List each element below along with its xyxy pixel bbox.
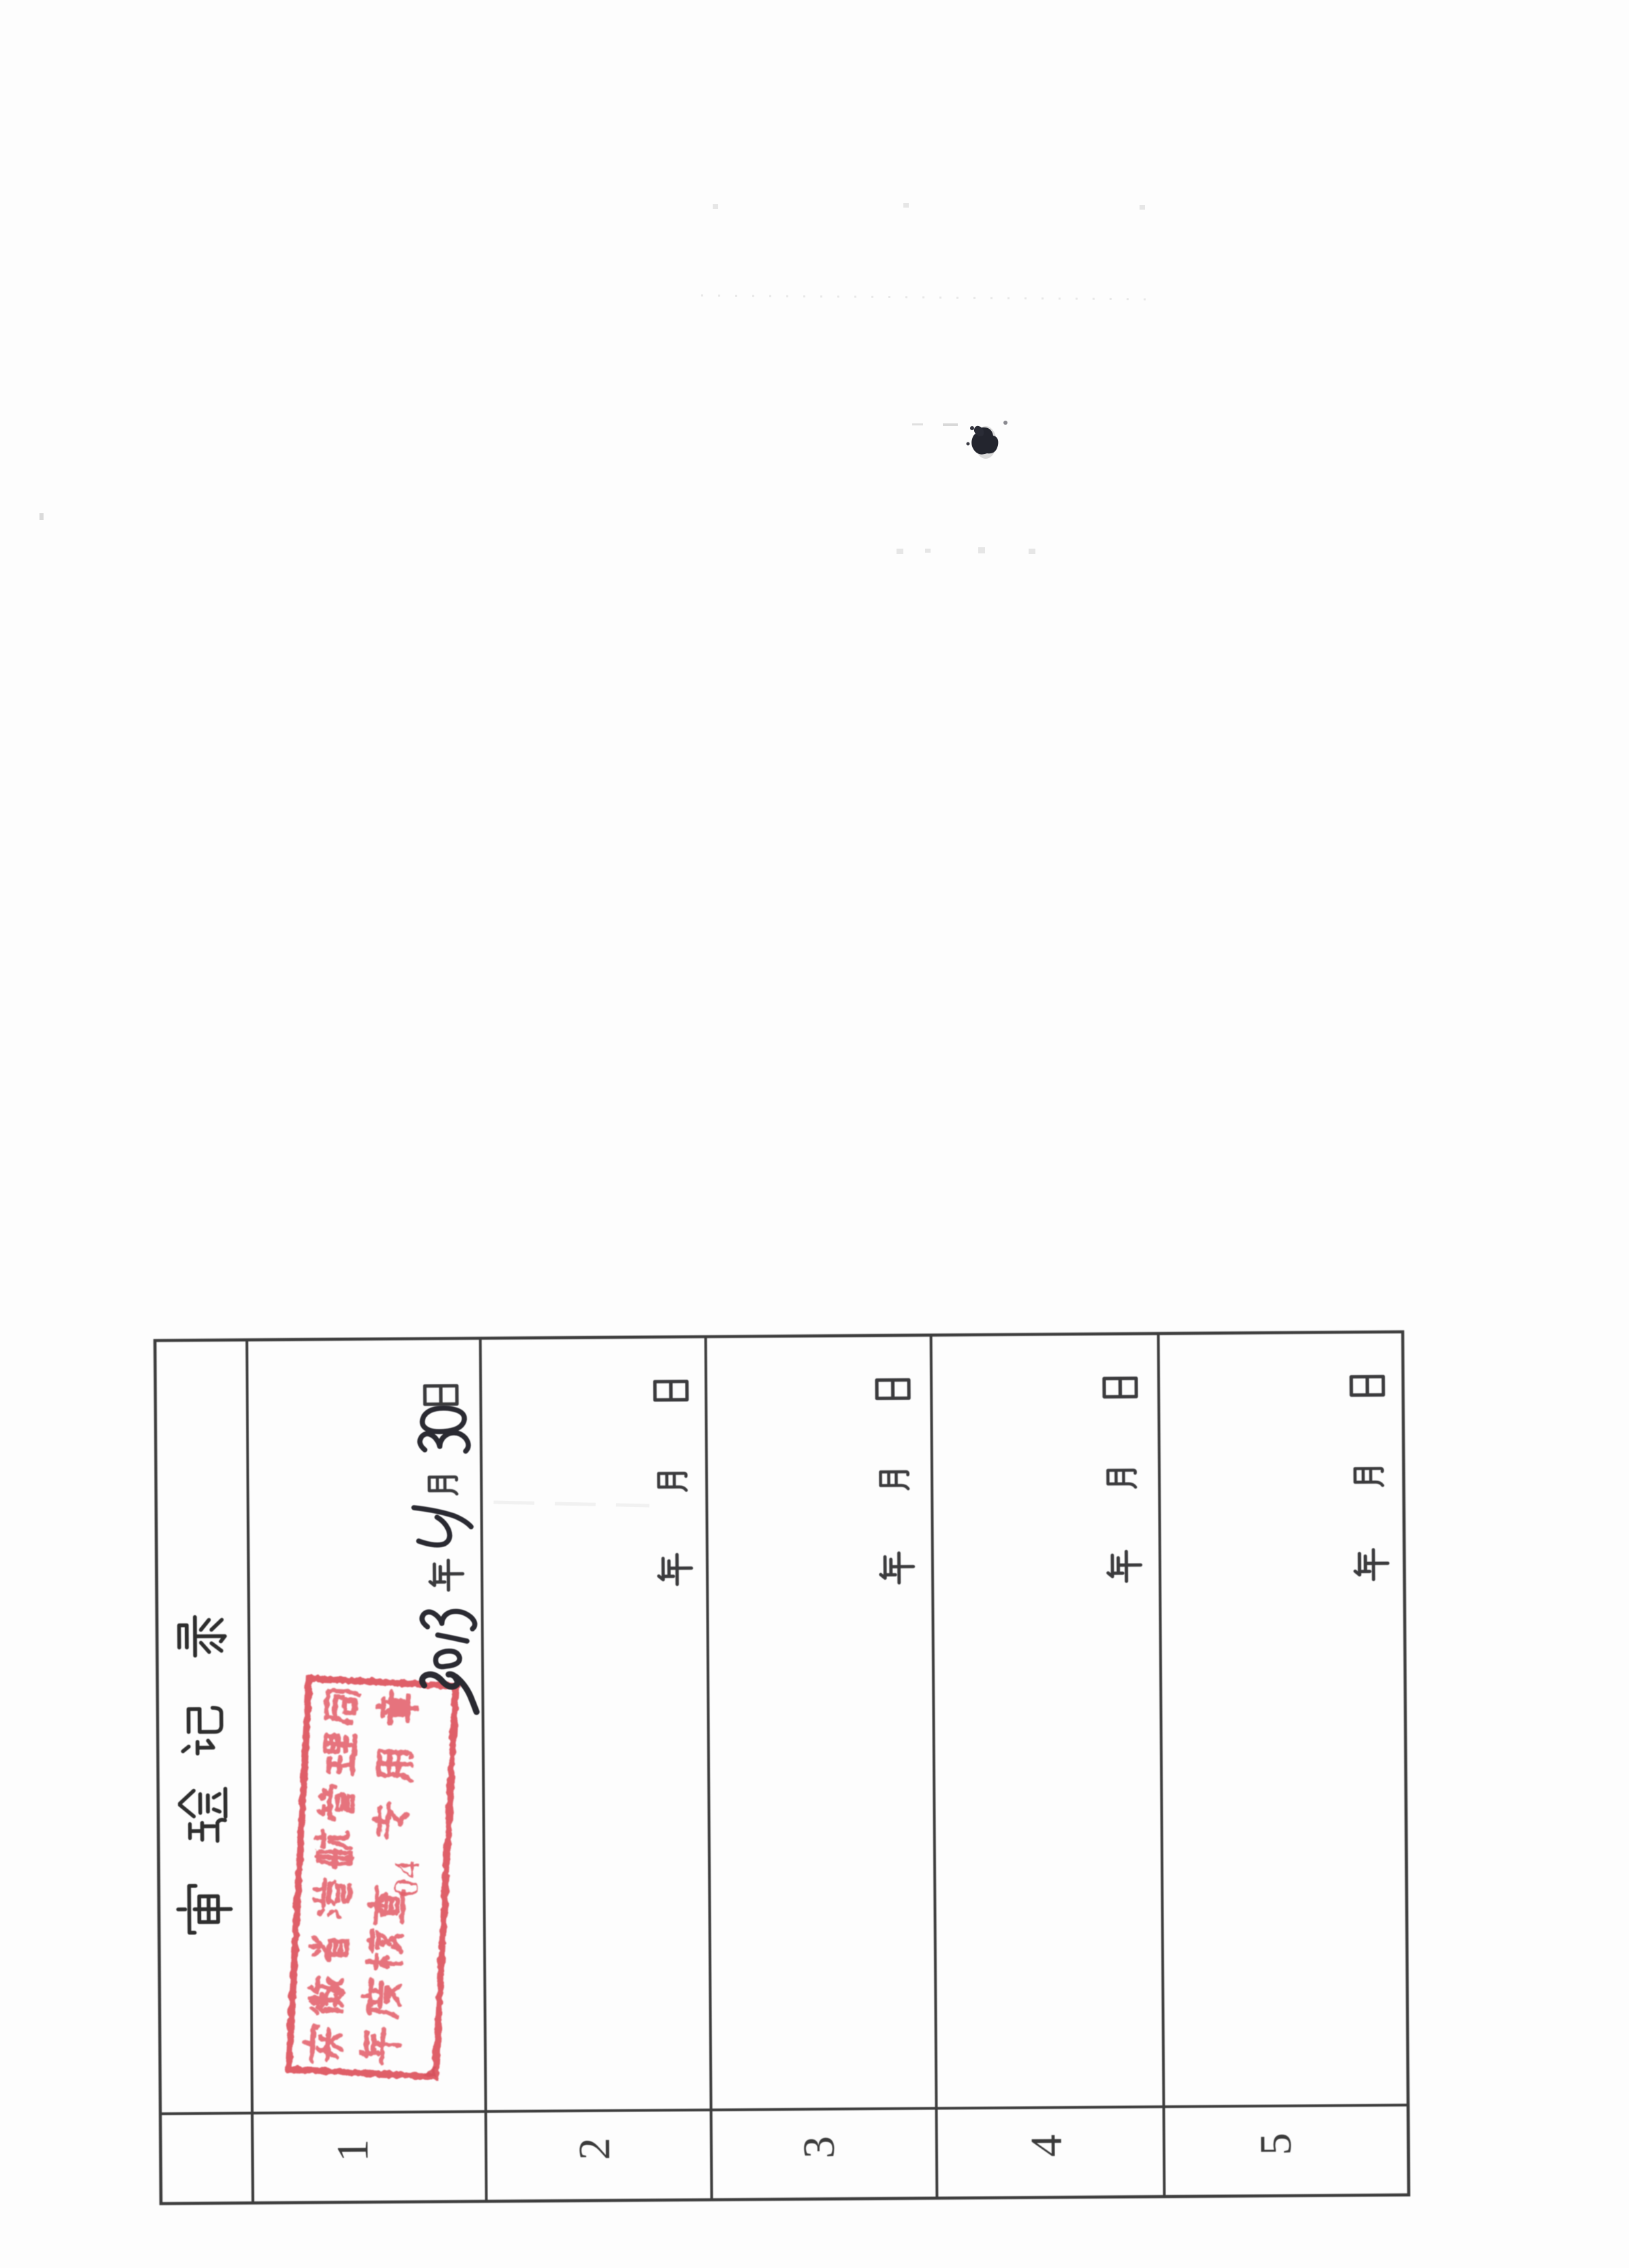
svg-text:1: 1 xyxy=(328,2139,378,2162)
svg-text:04: 04 xyxy=(387,1858,428,1898)
svg-text:5: 5 xyxy=(1251,2133,1301,2156)
svg-text:3: 3 xyxy=(794,2136,844,2159)
svg-text:2: 2 xyxy=(570,2137,619,2160)
svg-text:4: 4 xyxy=(1022,2135,1071,2158)
